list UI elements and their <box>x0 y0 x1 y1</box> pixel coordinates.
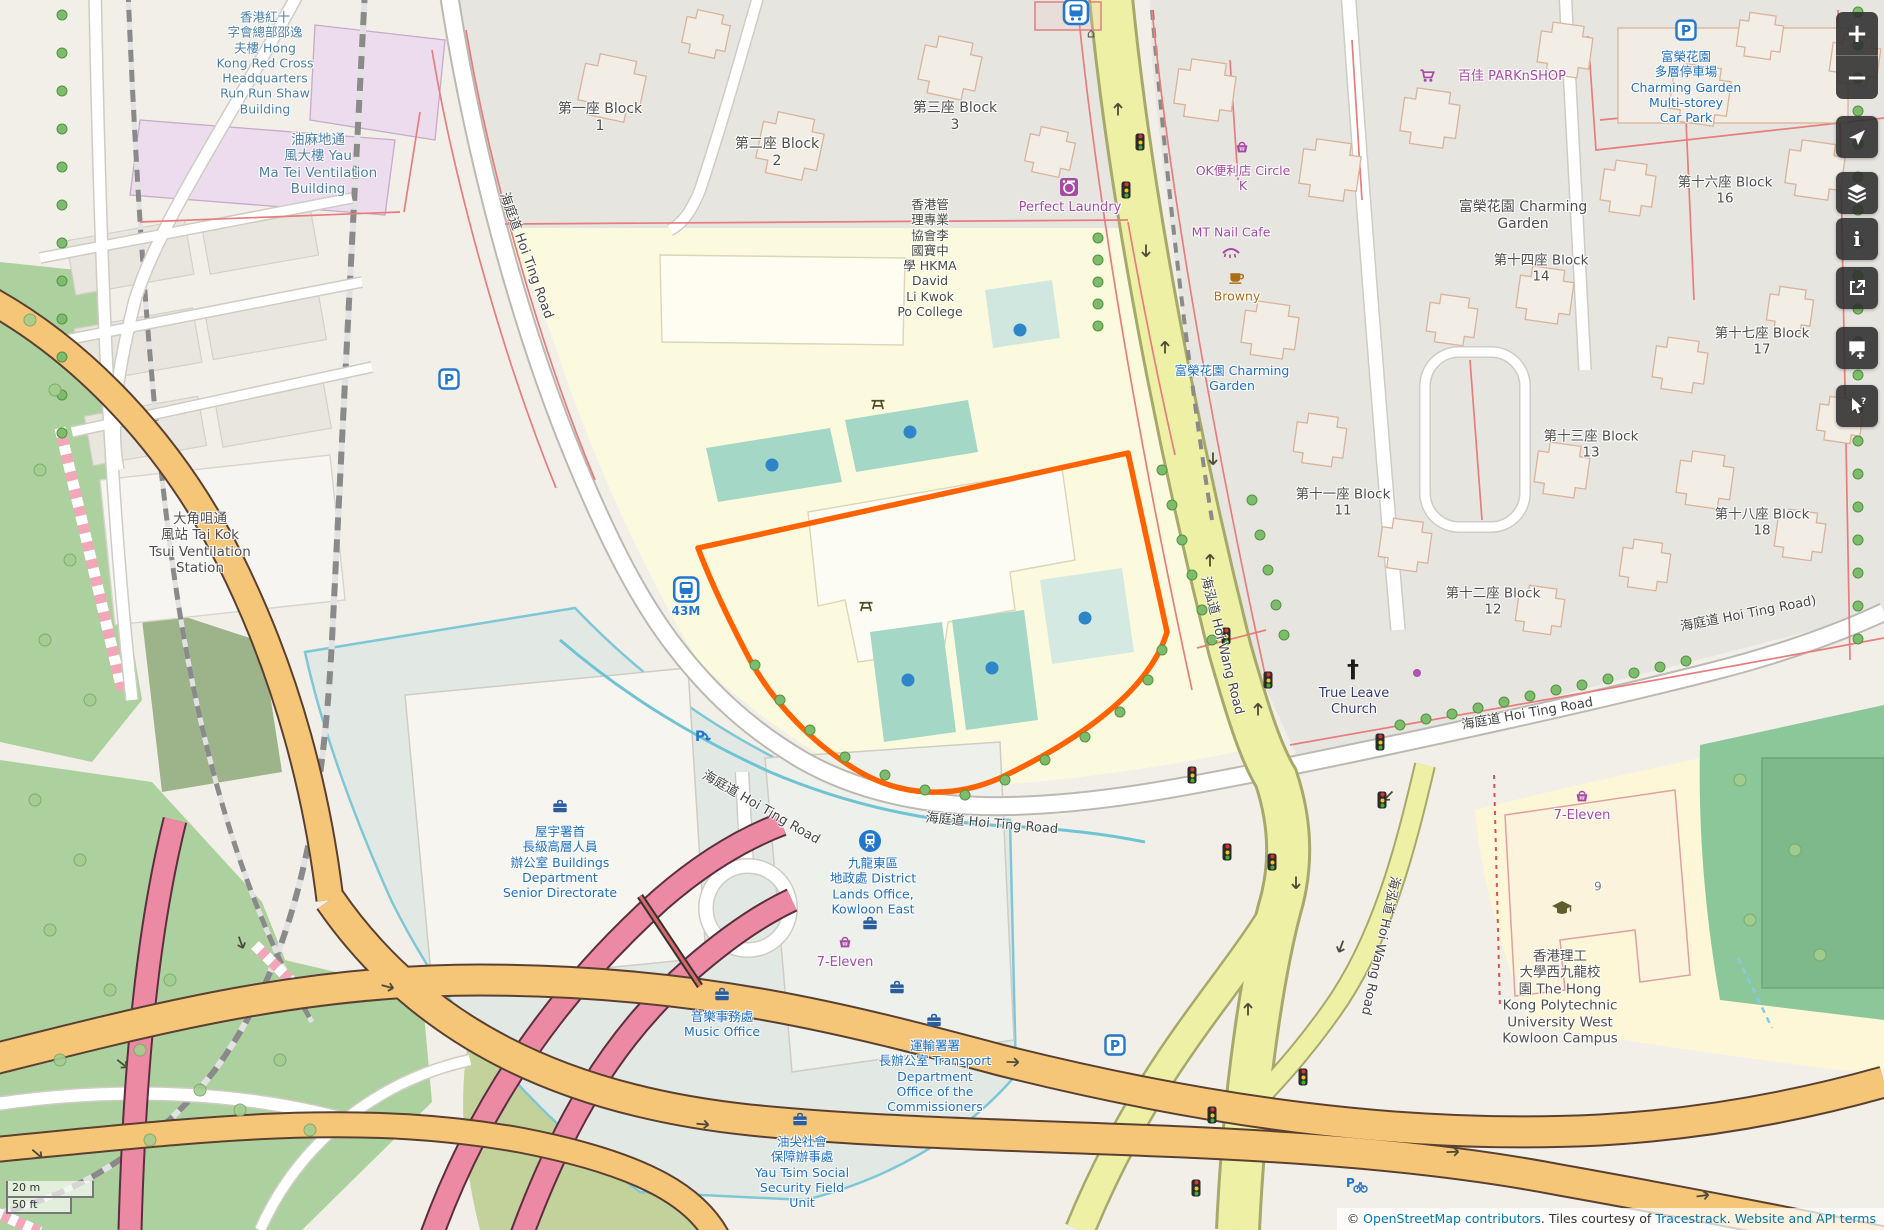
tower-building <box>682 10 731 59</box>
buildings-dept-building <box>405 668 706 985</box>
red-cross-building <box>310 25 445 140</box>
attribution-prefix: © <box>1347 1211 1363 1226</box>
share-icon <box>1847 278 1867 298</box>
tracestrack-link[interactable]: Tracestrack <box>1655 1211 1726 1226</box>
attribution: © OpenStreetMap contributors. Tiles cour… <box>1337 1208 1884 1230</box>
zoom-panel: + − <box>1836 12 1878 99</box>
terms-link[interactable]: Website and API terms <box>1735 1211 1876 1226</box>
tower-building <box>578 54 646 122</box>
zoom-out-button[interactable]: − <box>1836 55 1878 99</box>
add-note-icon <box>1846 337 1868 359</box>
basemap <box>0 0 1884 1230</box>
sports-field <box>1762 758 1884 988</box>
tower-building <box>918 36 982 100</box>
school-building-north <box>660 255 905 345</box>
scale-bar: 20 m 50 ft <box>6 1181 94 1214</box>
estate-area-north <box>455 0 1148 230</box>
station-compound <box>1035 2 1101 30</box>
osm-link[interactable]: OpenStreetMap contributors <box>1363 1211 1541 1226</box>
tower-building <box>756 112 824 180</box>
attribution-middle: . Tiles courtesy of <box>1541 1211 1655 1226</box>
layers-icon <box>1846 182 1868 204</box>
scale-metric: 20 m <box>6 1181 94 1197</box>
car-park-building <box>1618 28 1848 123</box>
tower-building <box>1025 127 1076 178</box>
layers-button[interactable] <box>1836 172 1878 214</box>
locate-icon <box>1847 127 1867 147</box>
map-viewport[interactable]: P†43MPPPP⌂ 香港紅十字會總部邵逸夫樓 HongKong Red Cro… <box>0 0 1884 1230</box>
query-features-icon: ? <box>1847 396 1867 416</box>
zoom-in-button[interactable]: + <box>1836 12 1878 55</box>
add-note-button[interactable] <box>1836 327 1878 369</box>
share-button[interactable] <box>1836 267 1878 309</box>
scale-imperial: 50 ft <box>6 1198 72 1214</box>
attribution-separator: . <box>1727 1211 1735 1226</box>
query-features-button[interactable]: ? <box>1836 385 1878 427</box>
locate-button[interactable] <box>1836 116 1878 158</box>
svg-text:?: ? <box>1861 397 1866 407</box>
info-button[interactable]: i <box>1836 218 1878 260</box>
